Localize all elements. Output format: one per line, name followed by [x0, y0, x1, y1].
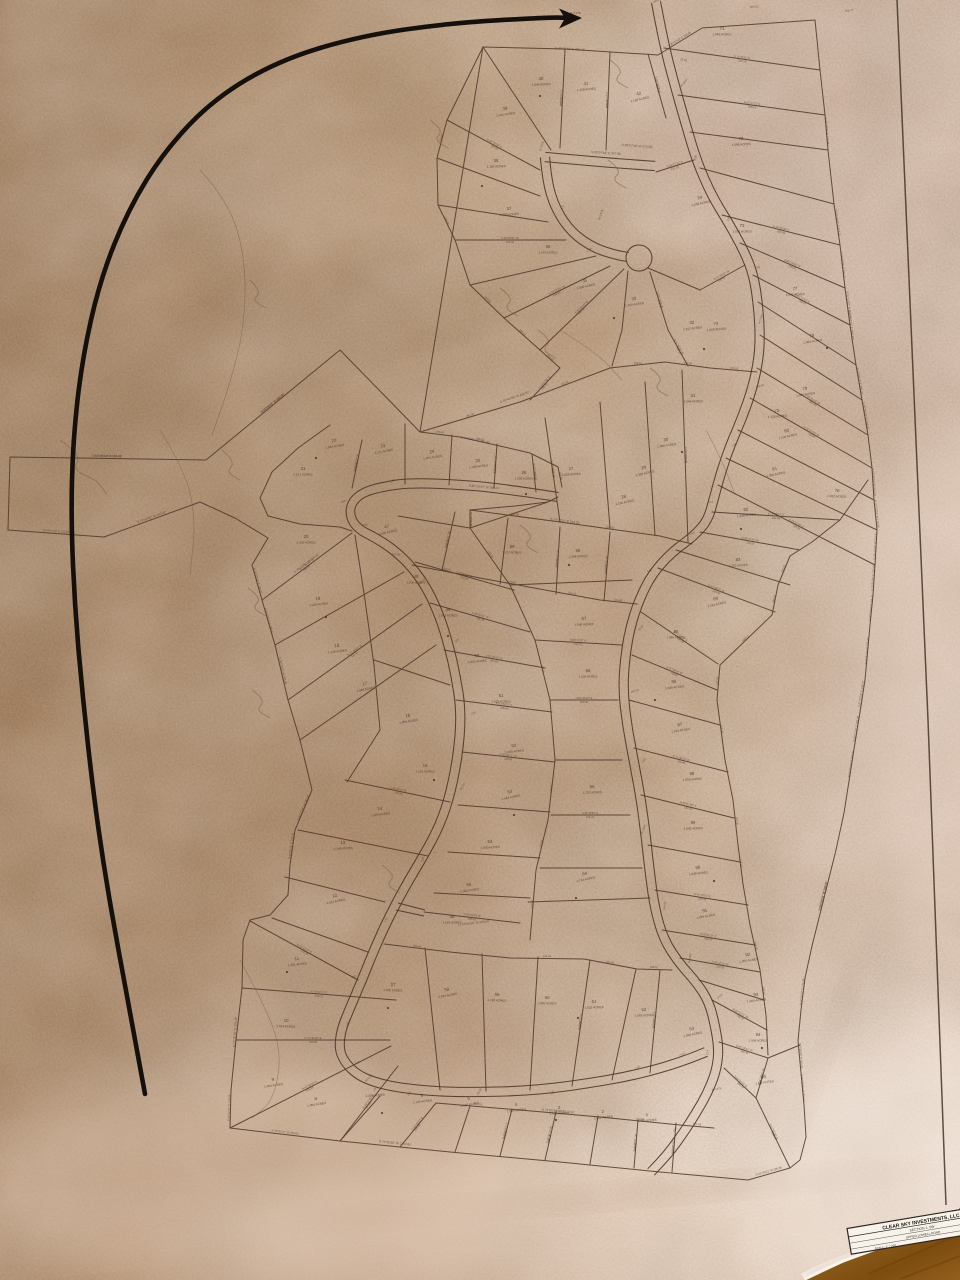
svg-text:162.00: 162.00 [530, 899, 535, 908]
svg-text:164.63: 164.63 [506, 240, 515, 244]
svg-text:15: 15 [423, 763, 428, 768]
svg-text:1.000 ACRES: 1.000 ACRES [684, 826, 703, 831]
svg-text:398.01: 398.01 [650, 965, 659, 969]
svg-text:296.40: 296.40 [633, 1142, 638, 1151]
svg-text:150.00: 150.00 [392, 552, 401, 556]
svg-text:94: 94 [756, 1032, 761, 1037]
svg-text:37: 37 [506, 206, 512, 211]
svg-text:130.00: 130.00 [559, 97, 563, 106]
svg-text:5.071 ACRES: 5.071 ACRES [293, 472, 312, 476]
svg-text:69: 69 [510, 544, 516, 549]
svg-text:75: 75 [774, 408, 780, 413]
svg-text:C17: C17 [708, 500, 714, 504]
svg-text:184.63: 184.63 [730, 366, 739, 371]
svg-text:31: 31 [690, 393, 696, 398]
svg-text:181.85: 181.85 [693, 1122, 702, 1127]
svg-text:71: 71 [720, 26, 726, 31]
svg-text:1.046 ACRES: 1.046 ACRES [712, 32, 731, 36]
svg-text:290.40: 290.40 [671, 1145, 676, 1154]
svg-text:36: 36 [546, 244, 551, 249]
svg-text:N.64°24'37" E: N.64°24'37" E [576, 696, 593, 700]
svg-text:65: 65 [589, 784, 595, 789]
svg-text:56: 56 [450, 914, 455, 919]
svg-text:S.64°35'56" W: S.64°35'56" W [501, 236, 519, 240]
svg-text:147.33: 147.33 [556, 1109, 565, 1114]
svg-text:68: 68 [575, 548, 581, 553]
svg-text:313.31: 313.31 [586, 815, 595, 819]
svg-text:54: 54 [487, 839, 493, 844]
svg-text:1.136 ACRES: 1.136 ACRES [415, 769, 434, 773]
svg-text:313.31: 313.31 [493, 464, 498, 473]
svg-text:1.261 ACRES: 1.261 ACRES [583, 790, 602, 795]
svg-text:1.032 ACRES: 1.032 ACRES [438, 613, 457, 617]
svg-text:147.33: 147.33 [715, 676, 720, 685]
svg-text:1.000 ACRES: 1.000 ACRES [537, 1001, 556, 1005]
svg-text:13: 13 [340, 840, 346, 845]
svg-text:200.02: 200.02 [750, 4, 759, 9]
svg-text:76: 76 [835, 488, 841, 493]
svg-text:C90: C90 [755, 265, 761, 269]
svg-text:1.136 ACRES: 1.136 ACRES [578, 674, 597, 678]
svg-text:61: 61 [591, 999, 597, 1004]
svg-text:72: 72 [738, 136, 744, 141]
svg-text:88: 88 [689, 771, 695, 776]
svg-text:1.098 ACRES: 1.098 ACRES [514, 476, 533, 480]
svg-text:1.142 ACRES: 1.142 ACRES [538, 250, 557, 254]
svg-text:59: 59 [495, 992, 501, 997]
svg-text:62: 62 [641, 1007, 647, 1012]
svg-text:313.31: 313.31 [574, 642, 583, 646]
svg-text:1.000 ACRES: 1.000 ACRES [383, 988, 402, 993]
svg-text:1.002 ACRES: 1.002 ACRES [732, 229, 751, 233]
svg-text:73: 73 [740, 223, 745, 228]
svg-text:48: 48 [414, 574, 419, 579]
svg-text:60: 60 [545, 995, 551, 1000]
svg-text:1.048 ACRES: 1.048 ACRES [683, 399, 702, 403]
svg-text:S.25°39'54" E: S.25°39'54" E [582, 811, 599, 815]
svg-text:1.006 ACRES: 1.006 ACRES [748, 1038, 767, 1042]
svg-text:38: 38 [493, 158, 499, 163]
svg-text:1.046 ACRES: 1.046 ACRES [575, 622, 594, 627]
svg-text:57: 57 [391, 982, 397, 987]
svg-text:1.002 ACRES: 1.002 ACRES [296, 540, 315, 544]
svg-text:266.62: 266.62 [605, 99, 609, 108]
svg-text:21: 21 [301, 466, 306, 471]
svg-text:130.00: 130.00 [309, 1040, 318, 1044]
svg-text:1.190 ACRES: 1.190 ACRES [487, 998, 506, 1003]
svg-text:67: 67 [581, 616, 587, 621]
svg-text:266.62: 266.62 [555, 558, 559, 567]
svg-text:77: 77 [792, 286, 798, 291]
svg-text:26: 26 [522, 470, 527, 475]
svg-text:184.63: 184.63 [604, 564, 609, 573]
svg-text:10: 10 [284, 1018, 290, 1023]
svg-text:27: 27 [568, 466, 574, 471]
svg-text:164.63: 164.63 [543, 954, 552, 958]
svg-text:1.025 ACRES: 1.025 ACRES [585, 1005, 604, 1010]
svg-text:1.099 ACRES: 1.099 ACRES [569, 554, 588, 559]
svg-text:164.63: 164.63 [469, 518, 473, 527]
svg-text:N.17°22'26" E 295.86: N.17°22'26" E 295.86 [95, 454, 122, 458]
svg-text:20: 20 [304, 534, 309, 539]
svg-text:N.77°44'36" E: N.77°44'36" E [305, 1036, 322, 1040]
svg-text:164.63: 164.63 [474, 1102, 483, 1107]
svg-text:66: 66 [586, 668, 591, 673]
svg-text:1.190 ACRES: 1.190 ACRES [487, 164, 506, 169]
svg-text:290.40: 290.40 [684, 455, 688, 464]
svg-text:49: 49 [446, 607, 451, 612]
svg-text:164.63: 164.63 [772, 516, 781, 521]
svg-text:1.111 ACRES: 1.111 ACRES [502, 550, 521, 555]
svg-text:290.40: 290.40 [580, 700, 589, 704]
svg-text:1.048 ACRES: 1.048 ACRES [532, 82, 551, 87]
svg-text:313.31: 313.31 [315, 994, 324, 999]
svg-text:51: 51 [499, 693, 504, 698]
svg-text:40: 40 [538, 76, 544, 81]
svg-text:89: 89 [690, 820, 696, 825]
svg-text:83: 83 [735, 557, 741, 562]
